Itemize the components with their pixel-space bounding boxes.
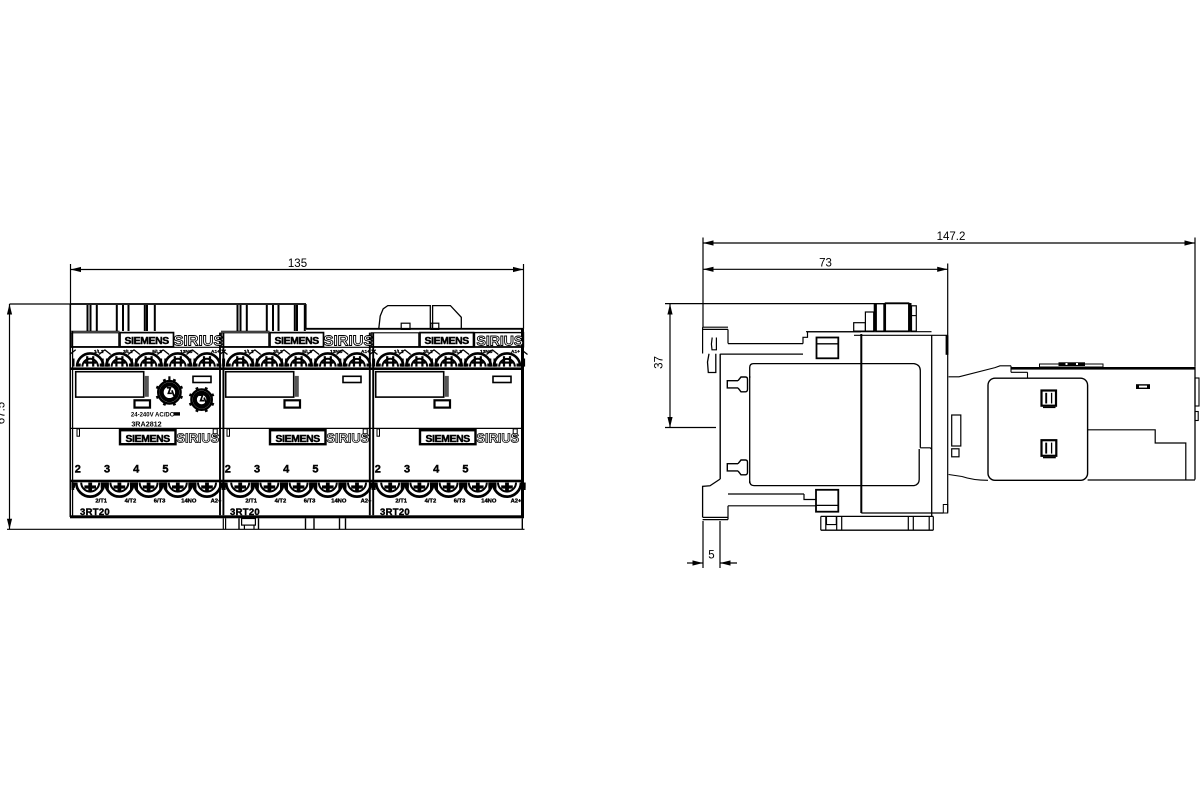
svg-text:SIEMENS: SIEMENS <box>275 336 320 347</box>
svg-text:3RT20: 3RT20 <box>380 507 410 518</box>
svg-text:14NO: 14NO <box>481 499 497 505</box>
svg-text:A2+: A2+ <box>511 499 522 505</box>
svg-text:6/T3: 6/T3 <box>454 499 466 505</box>
svg-text:4: 4 <box>433 464 440 476</box>
svg-text:3: 3 <box>404 464 410 476</box>
svg-text:5: 5 <box>162 464 168 476</box>
svg-text:4/T2: 4/T2 <box>275 499 287 505</box>
svg-text:SIEMENS: SIEMENS <box>125 336 170 347</box>
svg-text:3: 3 <box>254 464 260 476</box>
svg-text:SIEMENS: SIEMENS <box>425 336 470 347</box>
svg-text:5: 5 <box>312 464 318 476</box>
svg-text:135: 135 <box>288 258 307 270</box>
svg-text:SIEMENS: SIEMENS <box>276 434 321 445</box>
svg-text:4: 4 <box>133 464 140 476</box>
svg-text:A1+: A1+ <box>511 349 520 355</box>
svg-text:SIRIUS: SIRIUS <box>477 431 520 446</box>
svg-text:2: 2 <box>75 464 81 476</box>
svg-text:2/T1: 2/T1 <box>245 499 257 505</box>
svg-text:SIEMENS: SIEMENS <box>426 434 471 445</box>
svg-text:A1+: A1+ <box>211 349 220 355</box>
svg-text:147.2: 147.2 <box>937 231 966 243</box>
svg-text:2: 2 <box>225 464 231 476</box>
svg-text:6/T3: 6/T3 <box>154 499 166 505</box>
svg-text:A2+: A2+ <box>211 499 222 505</box>
svg-text:5: 5 <box>462 464 468 476</box>
svg-text:6/T3: 6/T3 <box>304 499 316 505</box>
svg-text:4: 4 <box>283 464 290 476</box>
svg-text:2/T1: 2/T1 <box>95 499 107 505</box>
svg-text:73: 73 <box>819 258 832 270</box>
svg-text:4/T2: 4/T2 <box>425 499 437 505</box>
svg-text:3: 3 <box>104 464 110 476</box>
svg-text:14NO: 14NO <box>331 499 347 505</box>
svg-text:SIRIUS: SIRIUS <box>177 431 220 446</box>
svg-text:A2+: A2+ <box>361 499 372 505</box>
svg-text:SIRIUS: SIRIUS <box>327 431 370 446</box>
svg-text:SIEMENS: SIEMENS <box>126 434 171 445</box>
svg-text:14NO: 14NO <box>181 499 197 505</box>
svg-text:A1+: A1+ <box>361 349 370 355</box>
svg-text:2/T1: 2/T1 <box>395 499 407 505</box>
svg-text:5: 5 <box>708 550 714 562</box>
svg-text:3RT20: 3RT20 <box>230 507 260 518</box>
svg-text:3RT20: 3RT20 <box>80 507 110 518</box>
svg-text:67.5: 67.5 <box>0 402 8 424</box>
svg-text:2: 2 <box>375 464 381 476</box>
svg-text:3RA2812: 3RA2812 <box>131 419 161 428</box>
svg-text:4/T2: 4/T2 <box>125 499 137 505</box>
svg-text:SIRIUS: SIRIUS <box>477 332 524 348</box>
svg-text:37: 37 <box>654 356 666 369</box>
svg-text:24-240V AC/DC: 24-240V AC/DC <box>131 412 175 418</box>
